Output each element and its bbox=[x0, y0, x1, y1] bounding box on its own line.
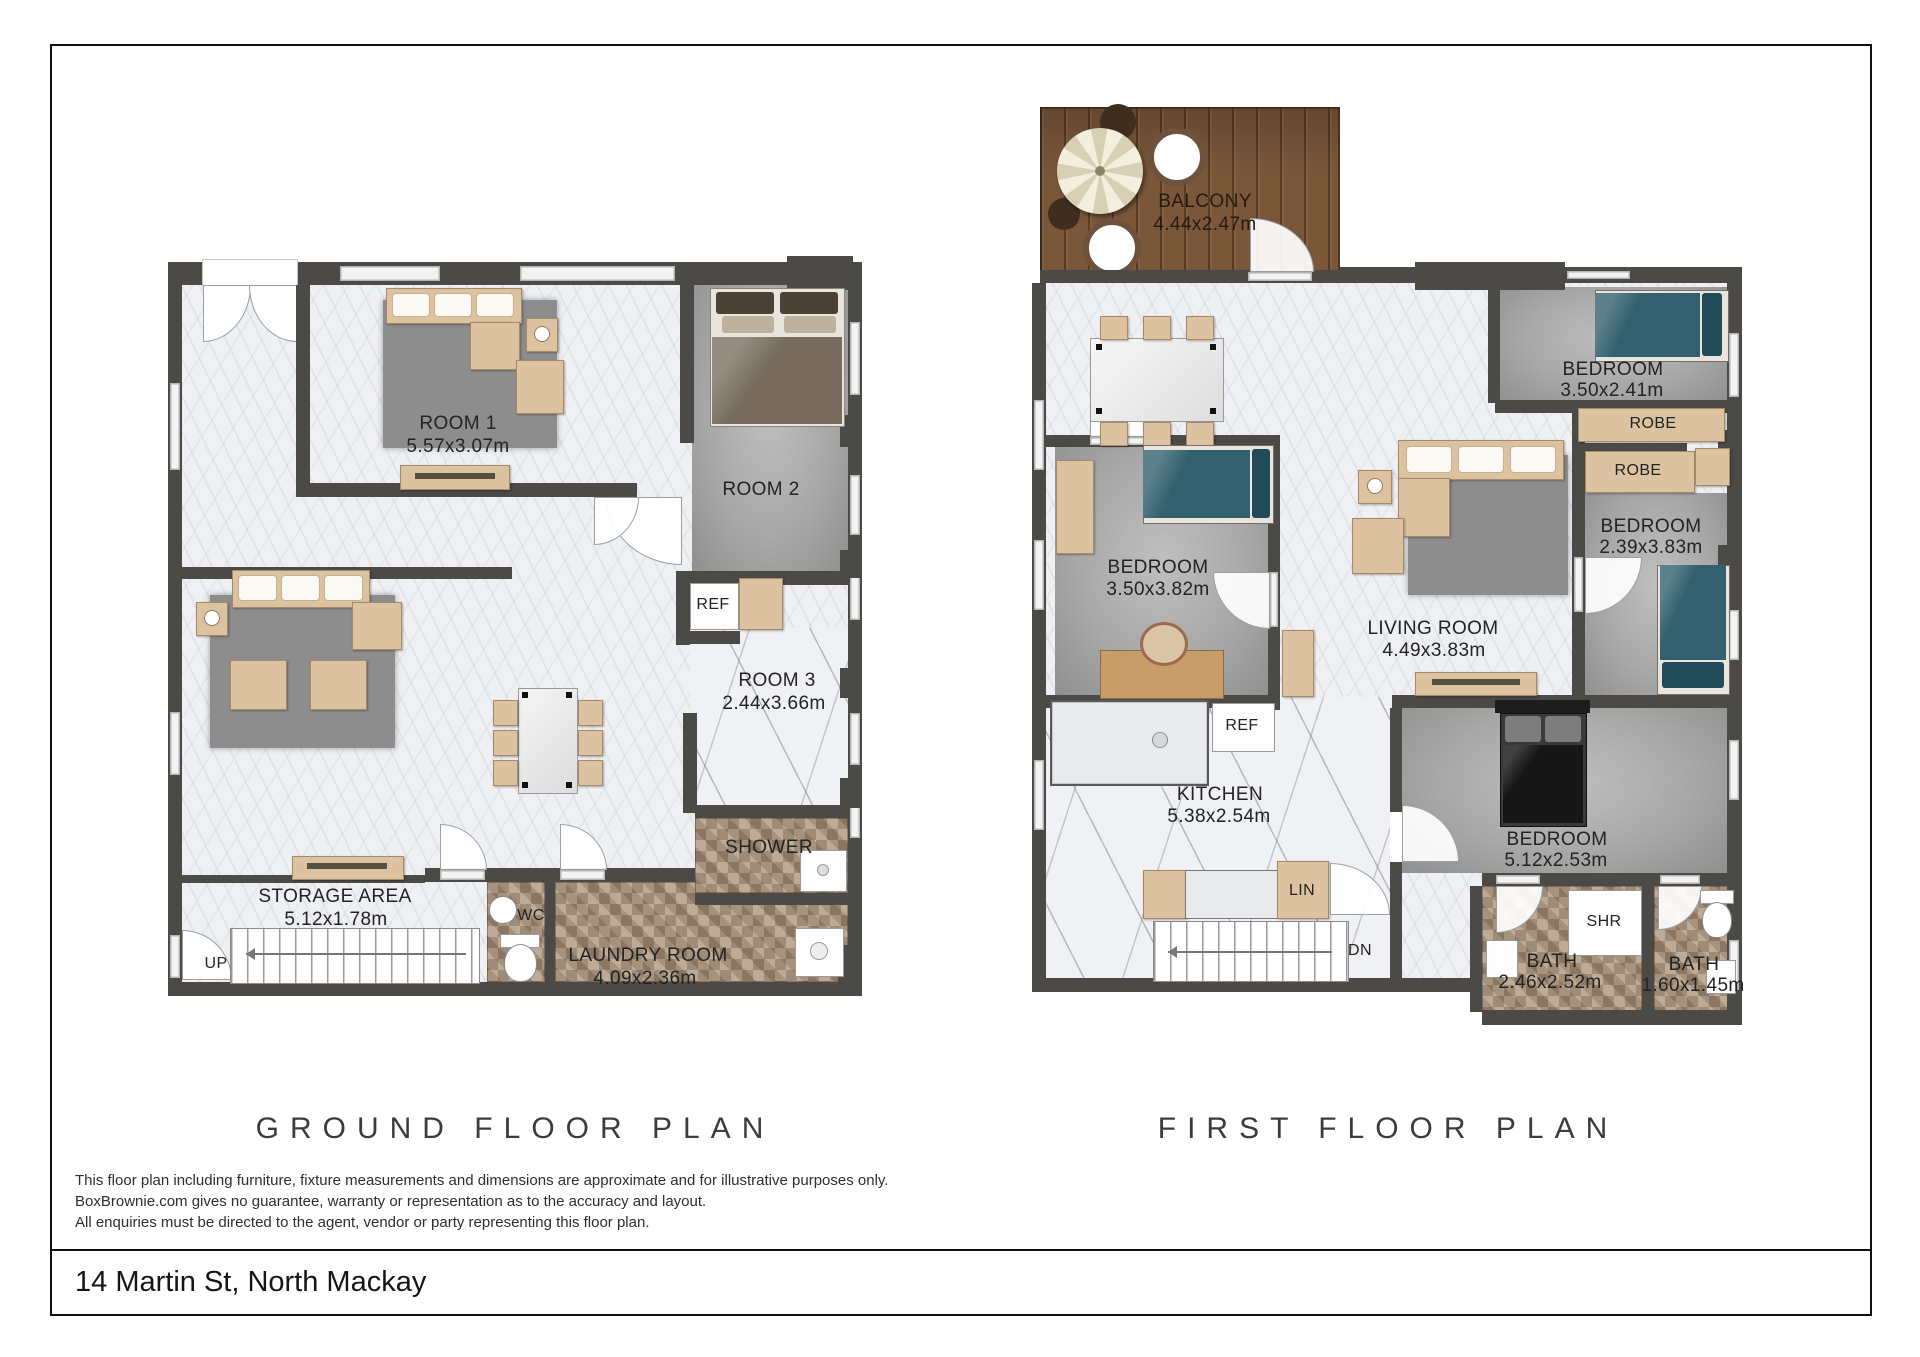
table-corner-dot bbox=[522, 692, 528, 698]
lounge-sofa-chaise bbox=[352, 602, 402, 650]
window bbox=[1034, 400, 1044, 470]
ground-floor-title: GROUND FLOOR PLAN bbox=[256, 1112, 775, 1146]
shower-label: SHOWER bbox=[725, 837, 813, 859]
window bbox=[1034, 760, 1044, 830]
kitchen-sink bbox=[1152, 732, 1168, 748]
stairs-arrow-line bbox=[1168, 951, 1332, 953]
disclaimer-line-3: All enquiries must be directed to the ag… bbox=[75, 1214, 650, 1231]
bedroom-left-robe bbox=[1056, 460, 1094, 554]
storage-label: STORAGE AREA bbox=[258, 886, 411, 908]
tv-screen bbox=[307, 863, 387, 869]
dining-chair bbox=[1186, 316, 1214, 340]
bed-pillow bbox=[1505, 716, 1541, 742]
dining-chair bbox=[1100, 422, 1128, 446]
window bbox=[1729, 333, 1739, 397]
sofa-cushion bbox=[434, 293, 472, 317]
dining-chair bbox=[493, 760, 518, 786]
window bbox=[850, 475, 860, 535]
sofa-cushion bbox=[392, 293, 430, 317]
window bbox=[1729, 740, 1739, 800]
kitchen-cabinet bbox=[1143, 870, 1187, 919]
bed-blanket-teal bbox=[1143, 450, 1250, 518]
stairs-arrow-head bbox=[1162, 946, 1177, 958]
table-corner-dot bbox=[566, 782, 572, 788]
room2-left-wall bbox=[680, 285, 694, 443]
ground-counter bbox=[739, 578, 783, 630]
bath1-left-wall bbox=[1470, 886, 1482, 1012]
lounge-armchair bbox=[230, 660, 287, 710]
ground-top-wall-pier bbox=[787, 256, 853, 290]
bed-pillow bbox=[716, 292, 774, 314]
table-corner-dot bbox=[1210, 344, 1216, 350]
bedroom-left-dims: 3.50x3.82m bbox=[1106, 579, 1209, 601]
table-corner-dot bbox=[1096, 344, 1102, 350]
ground-bottom-wall bbox=[168, 982, 862, 996]
kitchen-label: KITCHEN bbox=[1177, 784, 1263, 806]
shower-top-wall bbox=[695, 805, 848, 818]
table-corner-dot bbox=[1096, 408, 1102, 414]
dining-chair bbox=[1186, 422, 1214, 446]
wc-laundry-wall bbox=[545, 882, 555, 982]
bedroom-left-label: BEDROOM bbox=[1108, 557, 1209, 579]
shower-laundry-wall bbox=[695, 893, 848, 905]
hall-floor bbox=[1390, 873, 1482, 985]
floor-plan-page: ROOM 1 5.57x3.07m ROOM 2 REF ROOM 3 2.44… bbox=[0, 0, 1920, 1357]
dining-table bbox=[518, 688, 578, 794]
bed-pillow bbox=[784, 316, 836, 333]
robe2-label: ROBE bbox=[1615, 462, 1662, 480]
table-lamp bbox=[204, 610, 220, 626]
ref-nook-wall bbox=[676, 571, 690, 645]
up-label: UP bbox=[204, 955, 227, 973]
window bbox=[1567, 271, 1630, 279]
bedroom-top-label: BEDROOM bbox=[1563, 359, 1664, 381]
sofa-cushion bbox=[1458, 446, 1504, 473]
bed-pillow bbox=[722, 316, 774, 333]
wall-pier bbox=[840, 778, 862, 808]
table-lamp bbox=[1367, 478, 1383, 494]
dn-label: DN bbox=[1348, 942, 1372, 960]
hall-left-wall bbox=[1390, 862, 1402, 982]
sofa-cushion bbox=[1406, 446, 1452, 473]
bedroom-right-left-wall bbox=[1572, 413, 1585, 697]
sofa-cushion bbox=[281, 575, 320, 601]
lounge-armchair bbox=[310, 660, 367, 710]
dining-chair bbox=[1143, 316, 1171, 340]
wall-pier bbox=[840, 668, 862, 698]
bedroom-right-label: BEDROOM bbox=[1601, 516, 1702, 538]
dining-chair bbox=[578, 700, 603, 726]
stairs-up bbox=[230, 928, 480, 984]
disclaimer-line-2: BoxBrownie.com gives no guarantee, warra… bbox=[75, 1193, 706, 1210]
entry-door-opening bbox=[202, 259, 298, 287]
footer-divider bbox=[50, 1249, 1870, 1251]
table-lamp bbox=[534, 326, 550, 342]
robe-side-cabinet bbox=[1695, 448, 1730, 486]
ground-ref-label: REF bbox=[696, 596, 729, 614]
dining-chair bbox=[1100, 316, 1128, 340]
first-dining-table bbox=[1090, 338, 1224, 422]
room3-label: ROOM 3 bbox=[738, 670, 815, 692]
wc-basin bbox=[489, 896, 517, 924]
dining-chair bbox=[493, 700, 518, 726]
sofa-cushion bbox=[1510, 446, 1556, 473]
wc-door-opening bbox=[440, 870, 485, 880]
stairs-arrow-head bbox=[240, 948, 255, 960]
bed-pillow bbox=[1702, 293, 1722, 356]
ground-left-wall bbox=[168, 262, 182, 982]
bath-bottom-wall bbox=[1482, 1010, 1742, 1025]
living-dims: 4.49x3.83m bbox=[1382, 640, 1485, 662]
first-left-wall bbox=[1032, 283, 1046, 980]
sofa-cushion bbox=[476, 293, 514, 317]
dining-chair bbox=[493, 730, 518, 756]
laundry-sink-drain bbox=[810, 942, 828, 960]
balcony-chair bbox=[1083, 219, 1141, 277]
toilet-bowl bbox=[504, 944, 537, 982]
kitchen-bench bbox=[1050, 700, 1209, 786]
bath2-label: BATH bbox=[1669, 954, 1720, 976]
window bbox=[170, 712, 180, 775]
bed-pillow bbox=[1252, 449, 1270, 518]
bath2-door-opening bbox=[1660, 875, 1700, 884]
bedroom-right-dims: 2.39x3.83m bbox=[1599, 537, 1702, 559]
dining-chair bbox=[1143, 422, 1171, 446]
window bbox=[170, 383, 180, 470]
balcony-chair bbox=[1148, 128, 1206, 186]
bedroom-right-door-opening bbox=[1574, 557, 1583, 612]
sofa-cushion bbox=[324, 575, 363, 601]
tv-screen bbox=[415, 473, 495, 479]
window bbox=[520, 266, 675, 281]
laundry-door-opening bbox=[560, 870, 605, 880]
window bbox=[1729, 610, 1739, 660]
table-corner-dot bbox=[1210, 408, 1216, 414]
side-door-opening bbox=[170, 935, 180, 978]
first-floor-title: FIRST FLOOR PLAN bbox=[1158, 1112, 1619, 1146]
table-corner-dot bbox=[522, 782, 528, 788]
room3-dims: 2.44x3.66m bbox=[722, 693, 825, 715]
bath1-label: BATH bbox=[1527, 951, 1578, 973]
hall-cabinet bbox=[1282, 630, 1314, 697]
robe-divider-wall bbox=[1578, 443, 1687, 451]
bed-blanket-teal bbox=[1595, 293, 1700, 357]
room2-label: ROOM 2 bbox=[722, 479, 799, 501]
ref-nook-wall-bottom bbox=[690, 631, 740, 644]
bath1-door-opening bbox=[1496, 875, 1540, 884]
toilet-bowl bbox=[1702, 902, 1732, 938]
table-corner-dot bbox=[566, 692, 572, 698]
kitchen-dims: 5.38x2.54m bbox=[1167, 806, 1270, 828]
storage-dims: 5.12x1.78m bbox=[284, 909, 387, 931]
shower-drain bbox=[817, 864, 829, 876]
bedroom-top-dims: 3.50x2.41m bbox=[1560, 380, 1663, 402]
bed-pillow bbox=[780, 292, 838, 314]
bedroom-bottom-dims: 5.12x2.53m bbox=[1504, 850, 1607, 872]
window bbox=[340, 266, 440, 281]
bed-blanket bbox=[712, 337, 842, 424]
bed-blanket-dark bbox=[1503, 745, 1583, 823]
room3-left-wall bbox=[683, 713, 697, 813]
room3-floor bbox=[690, 628, 848, 813]
balcony-label: BALCONY bbox=[1158, 191, 1252, 213]
laundry-label: LAUNDRY ROOM bbox=[568, 945, 727, 967]
room1-left-wall bbox=[296, 285, 310, 490]
bedroom-left-door2-opening bbox=[1270, 572, 1278, 627]
balcony-door-opening bbox=[1248, 272, 1312, 281]
window bbox=[1034, 540, 1044, 610]
window bbox=[850, 713, 860, 765]
lin-label: LIN bbox=[1289, 882, 1315, 900]
wc-label: WC bbox=[517, 907, 544, 925]
room1-label: ROOM 1 bbox=[419, 413, 496, 435]
living-sofa-chaise bbox=[1398, 478, 1450, 537]
bed-headboard bbox=[1495, 700, 1590, 713]
robe1-label: ROBE bbox=[1630, 415, 1677, 433]
tv-screen bbox=[1432, 679, 1520, 685]
bath1-dims: 2.46x2.52m bbox=[1498, 972, 1601, 994]
balcony-dims: 4.44x2.47m bbox=[1153, 214, 1256, 236]
bedroom-bottom-left-wall bbox=[1390, 708, 1402, 812]
umbrella-pole bbox=[1095, 166, 1105, 176]
living-label: LIVING ROOM bbox=[1367, 618, 1498, 640]
window bbox=[850, 322, 860, 395]
first-ref-label: REF bbox=[1225, 717, 1258, 735]
dining-chair bbox=[578, 760, 603, 786]
dining-chair bbox=[578, 730, 603, 756]
sofa-cushion bbox=[238, 575, 277, 601]
stairs-arrow-line bbox=[246, 953, 466, 955]
laundry-dims: 4.09x2.36m bbox=[593, 968, 696, 990]
room1-sofa-chaise bbox=[470, 322, 520, 370]
bedroom-top-left-wall bbox=[1488, 283, 1500, 403]
disclaimer-line-1: This floor plan including furniture, fix… bbox=[75, 1172, 888, 1189]
bed-pillow bbox=[1662, 662, 1724, 688]
living-armchair bbox=[1352, 518, 1404, 574]
desk-chair bbox=[1140, 622, 1188, 666]
window bbox=[850, 575, 860, 620]
room1-dims: 5.57x3.07m bbox=[406, 436, 509, 458]
room1-armchair bbox=[516, 360, 564, 414]
bedroom-bottom-label: BEDROOM bbox=[1507, 829, 1608, 851]
window bbox=[850, 805, 860, 838]
bath2-dims: 1.60x1.45m bbox=[1641, 975, 1744, 997]
bed-blanket-teal bbox=[1660, 565, 1726, 660]
kitchen-bench2 bbox=[1185, 870, 1279, 919]
address-text: 14 Martin St, North Mackay bbox=[75, 1266, 426, 1299]
shr-label: SHR bbox=[1587, 913, 1622, 931]
bed-pillow bbox=[1545, 716, 1581, 742]
